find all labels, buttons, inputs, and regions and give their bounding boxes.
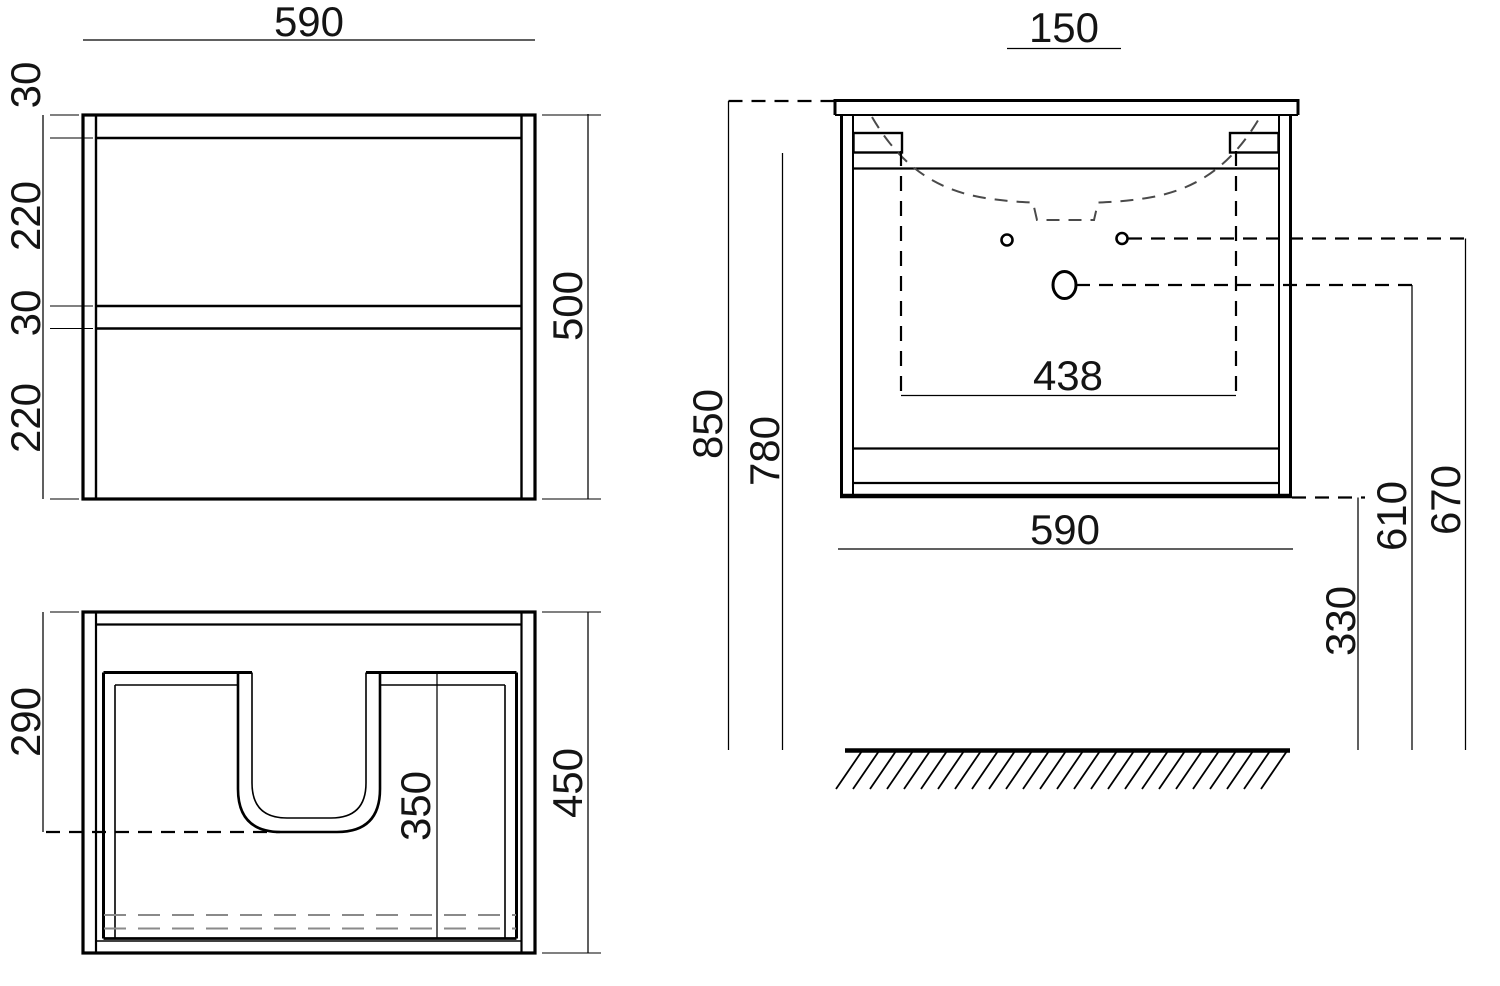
floor	[836, 751, 1290, 790]
front-upper-drawer-dimension: 220	[2, 181, 49, 251]
plan-dimension-lines	[43, 612, 588, 953]
technical-drawing-page: 590 30 220 30 220 500	[0, 0, 1500, 986]
front-dimension-lines	[43, 40, 588, 499]
floor-clearance-dimension: 330	[1317, 586, 1364, 656]
side-dimensions: 150 438 590 850 780 610 670 330	[684, 4, 1480, 760]
side-cabinet-sides	[842, 115, 1291, 494]
front-width-dimension: 590	[274, 0, 344, 45]
side-width-dimension: 590	[1030, 506, 1100, 553]
basin	[872, 117, 1260, 299]
plan-cabinet-outline	[83, 612, 535, 953]
front-dimension-ticks	[29, 26, 602, 509]
faucet-hole	[1053, 272, 1076, 299]
plan-depth-dimension: 450	[544, 748, 591, 818]
left-hanging-bracket	[854, 133, 903, 153]
plan-dimensions: 290 350 450	[2, 602, 602, 963]
side-cabinet-inner-panels	[853, 115, 1279, 494]
front-dimensions: 590 30 220 30 220 500	[2, 0, 602, 509]
fixing-hole-height-dimension: 670	[1422, 465, 1469, 535]
plan-view: 290 350 450	[2, 602, 602, 963]
front-lower-drawer-dimension: 220	[2, 383, 49, 453]
bracket-span-dimension: 438	[1033, 352, 1103, 399]
front-middle-gap-dimension: 30	[2, 290, 49, 337]
side-cabinet-rails	[853, 169, 1279, 484]
plan-siphon-cutout-inner	[252, 673, 366, 819]
right-fixing-hole	[1117, 233, 1128, 244]
overall-height-dimension: 850	[684, 389, 731, 459]
plan-side-panels	[96, 612, 522, 953]
hole-spacing-dimension: 150	[1029, 4, 1099, 51]
side-view: 150 438 590 850 780 610 670 330	[684, 4, 1480, 789]
plan-cabinet-body	[83, 612, 535, 953]
front-cabinet-outline	[83, 115, 535, 499]
front-panels-and-drawer-lines	[96, 115, 522, 499]
plan-drawer-inner-walls	[115, 685, 505, 939]
plan-hidden-front-edges	[104, 915, 516, 929]
floor-hatching	[836, 751, 1287, 789]
front-height-dimension: 500	[544, 271, 591, 341]
countertop	[835, 101, 1298, 116]
plan-cutout-depth-dimension: 350	[392, 771, 439, 841]
plan-extension-lines	[50, 612, 601, 953]
vanity-technical-drawing: 590 30 220 30 220 500	[0, 0, 1500, 986]
right-hanging-bracket	[1230, 133, 1279, 153]
faucet-hole-height-dimension: 610	[1368, 481, 1415, 551]
front-view: 590 30 220 30 220 500	[2, 0, 602, 509]
plan-siphon-depth-dimension: 290	[2, 687, 49, 757]
plan-drawer-outer-walls	[104, 673, 517, 939]
front-top-rail-dimension: 30	[2, 62, 49, 109]
left-fixing-hole	[1002, 235, 1013, 246]
plan-drawer-box	[104, 673, 517, 939]
bracket-height-dimension: 780	[741, 416, 788, 486]
